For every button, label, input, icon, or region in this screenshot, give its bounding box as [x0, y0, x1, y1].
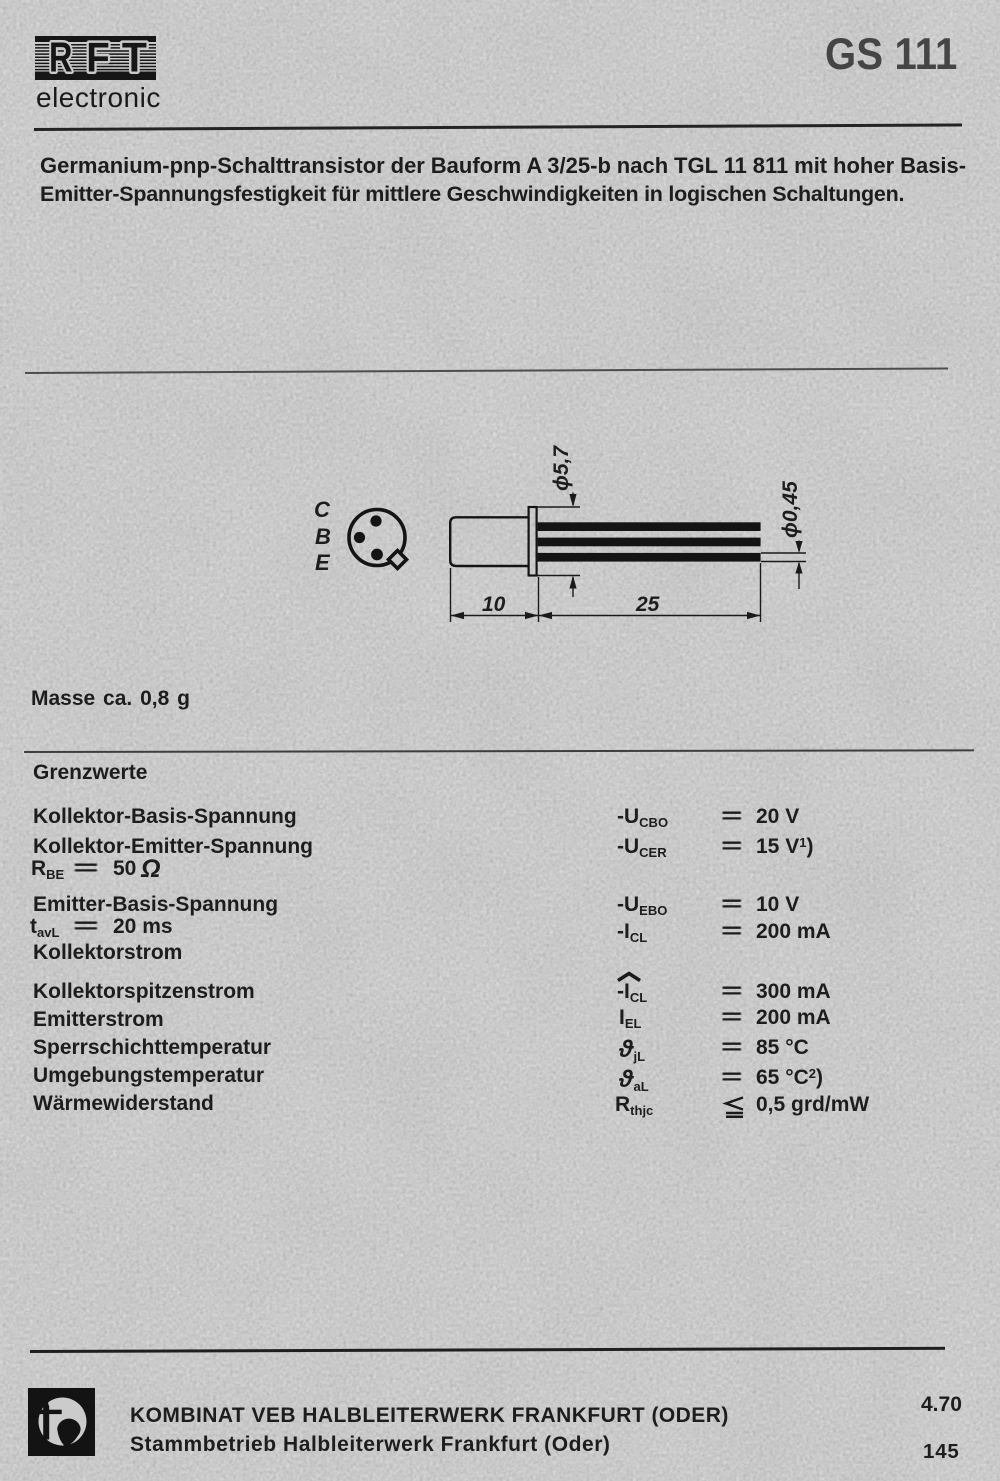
svg-text:C: C — [314, 497, 331, 522]
svg-text:B: B — [315, 524, 331, 549]
svg-text:25: 25 — [635, 593, 660, 616]
svg-text:F: F — [86, 36, 110, 80]
svg-text:ϕ0,45: ϕ0,45 — [779, 481, 802, 538]
svg-text:ϕ5,7: ϕ5,7 — [550, 445, 573, 491]
svg-text:E: E — [315, 550, 331, 575]
svg-text:10: 10 — [482, 593, 506, 616]
svg-text:T: T — [122, 36, 147, 80]
svg-text:R: R — [49, 36, 73, 80]
